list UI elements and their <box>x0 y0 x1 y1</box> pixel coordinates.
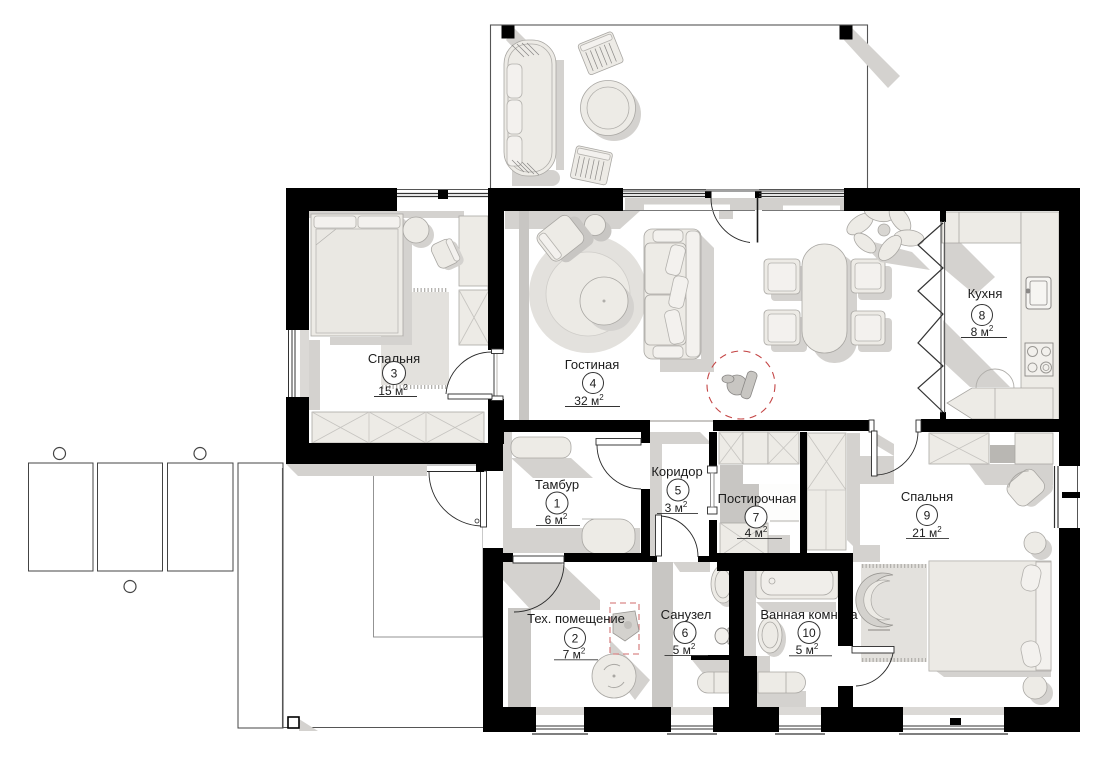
svg-text:10: 10 <box>802 626 816 640</box>
svg-text:3: 3 <box>391 367 398 381</box>
svg-text:6: 6 <box>682 626 689 640</box>
svg-text:7: 7 <box>753 511 760 525</box>
svg-text:Гостиная: Гостиная <box>565 357 620 372</box>
svg-text:Спальня: Спальня <box>901 489 953 504</box>
svg-text:Постирочная: Постирочная <box>718 491 797 506</box>
svg-text:2: 2 <box>572 632 579 646</box>
svg-text:Санузел: Санузел <box>661 607 712 622</box>
svg-text:Коридор: Коридор <box>651 464 702 479</box>
svg-text:4: 4 <box>590 377 597 391</box>
svg-text:Тамбур: Тамбур <box>535 477 579 492</box>
svg-text:9: 9 <box>924 509 931 523</box>
svg-text:8: 8 <box>979 309 986 323</box>
svg-text:5: 5 <box>675 484 682 498</box>
svg-text:Тех. помещение: Тех. помещение <box>527 611 625 626</box>
svg-text:Кухня: Кухня <box>968 286 1003 301</box>
svg-text:1: 1 <box>554 497 561 511</box>
